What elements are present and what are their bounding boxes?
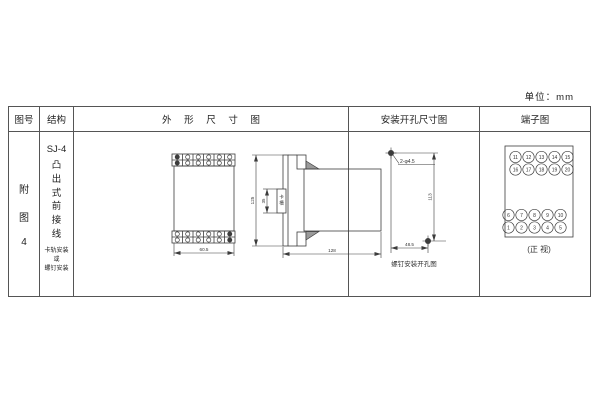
cell-structure: SJ-4 凸出式前接线 卡轨安装 或 螺钉安装 — [40, 132, 74, 296]
slot-label: 卡 — [279, 194, 284, 201]
table-body-row: 附 图 4 SJ-4 凸出式前接线 卡轨安装 或 螺钉安装 — [9, 132, 590, 296]
terminal-number: 2 — [520, 225, 523, 231]
structure-type-vertical: 凸出式前接线 — [51, 159, 63, 242]
header-figure-no: 图号 — [9, 107, 40, 131]
mounting-note-line: 螺钉安装 — [44, 265, 68, 274]
terminal-number: 13 — [539, 155, 545, 161]
slot-dim: 35 — [261, 198, 266, 203]
structure-model: SJ-4 — [47, 144, 67, 155]
terminal-number: 6 — [507, 213, 510, 219]
cell-figure-no: 附 图 4 — [9, 132, 40, 296]
mounting-note-line: 卡轨安装 — [44, 247, 68, 256]
mounting-note-line: 或 — [44, 256, 68, 265]
header-terminal-diagram: 端子图 — [480, 107, 590, 131]
horizontal-dim: 48.5 — [405, 242, 414, 247]
figure-char: 附 — [19, 181, 29, 196]
figure-char: 图 — [19, 209, 29, 224]
terminal-number: 12 — [526, 155, 532, 161]
terminal-number: 10 — [558, 213, 564, 219]
terminal-number: 14 — [552, 155, 558, 161]
mounting-caption: 螺钉安装开孔图 — [391, 259, 437, 268]
height-dim: 125 — [250, 196, 255, 204]
cell-terminal-diagram: 11 12 13 14 15 16 17 18 19 20 — [480, 132, 590, 296]
datasheet-page: 单位：mm 图号 结构 外 形 尺 寸 图 安装开孔尺寸图 端子图 附 图 4 … — [0, 0, 600, 400]
mounting-note: 卡轨安装 或 螺钉安装 — [44, 247, 68, 275]
mounting-hole-drawing: 2-φ4.5 113 48.5 螺钉安装开孔图 — [359, 139, 471, 274]
terminal-diagram: 11 12 13 14 15 16 17 18 19 20 — [498, 141, 588, 263]
figure-char: 4 — [21, 237, 27, 248]
terminal-number: 15 — [565, 155, 571, 161]
terminal-number: 16 — [513, 167, 519, 173]
terminal-number: 18 — [539, 167, 545, 173]
header-outline-dims: 外 形 尺 寸 图 — [74, 107, 349, 131]
terminal-number: 1 — [507, 225, 510, 231]
terminal-caption: (正 视) — [527, 244, 551, 254]
depth-dim: 128 — [328, 248, 336, 253]
terminal-number: 17 — [526, 167, 532, 173]
cell-mounting-holes: 2-φ4.5 113 48.5 螺钉安装开孔图 — [349, 132, 480, 296]
cell-outline-drawing: 60.5 — [74, 132, 349, 296]
terminal-number: 4 — [546, 225, 549, 231]
terminal-number: 8 — [533, 213, 536, 219]
terminal-number: 19 — [552, 167, 558, 173]
terminal-number: 5 — [559, 225, 562, 231]
front-view-drawing: 60.5 — [166, 146, 242, 264]
table-header-row: 图号 结构 外 形 尺 寸 图 安装开孔尺寸图 端子图 — [9, 107, 590, 132]
vertical-dim: 113 — [428, 193, 433, 201]
terminal-number: 3 — [533, 225, 536, 231]
terminal-number: 20 — [565, 167, 571, 173]
figure-number: 附 图 4 — [9, 132, 39, 296]
structure-info: SJ-4 凸出式前接线 卡轨安装 或 螺钉安装 — [40, 132, 73, 296]
terminal-number: 9 — [546, 213, 549, 219]
header-structure: 结构 — [40, 107, 74, 131]
header-mounting-holes: 安装开孔尺寸图 — [349, 107, 480, 131]
slot-label: 槽 — [279, 200, 284, 207]
terminal-number: 7 — [520, 213, 523, 219]
terminal-number: 11 — [513, 155, 518, 161]
holes-label: 2-φ4.5 — [400, 159, 415, 165]
front-width-dim: 60.5 — [200, 247, 209, 252]
dimension-table: 图号 结构 外 形 尺 寸 图 安装开孔尺寸图 端子图 附 图 4 SJ-4 凸… — [8, 106, 591, 297]
unit-label: 单位：mm — [525, 89, 574, 103]
